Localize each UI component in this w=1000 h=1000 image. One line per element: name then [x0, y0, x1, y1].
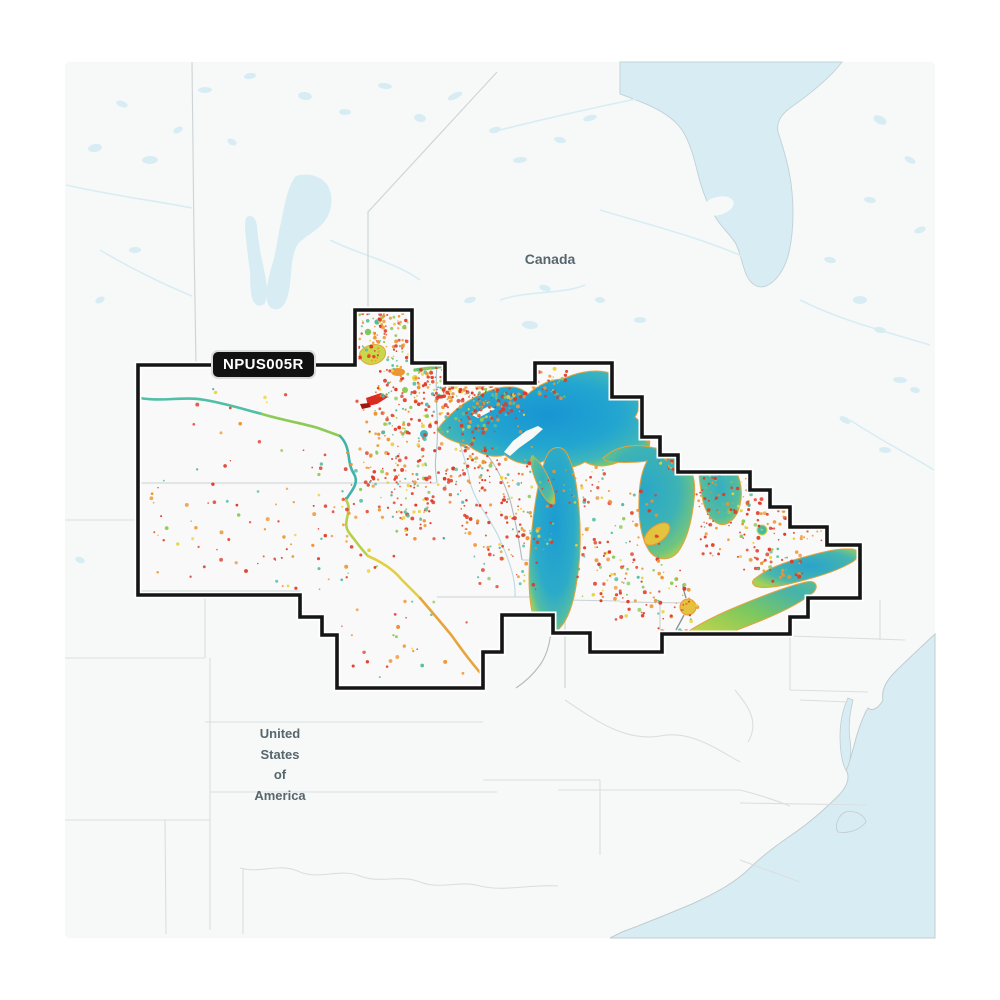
coverage-dot — [512, 402, 516, 406]
coverage-dot — [466, 390, 468, 392]
coverage-dot — [703, 497, 706, 500]
coverage-dot — [387, 507, 389, 509]
coverage-dot — [403, 325, 406, 328]
coverage-dot — [466, 521, 469, 524]
coverage-dot — [422, 384, 425, 387]
coverage-dot — [397, 497, 399, 499]
coverage-dot — [397, 455, 400, 458]
coverage-dot — [675, 586, 677, 588]
coverage-dot — [428, 423, 431, 426]
coverage-dot — [460, 508, 462, 510]
coverage-dot — [413, 480, 417, 484]
coverage-dot — [400, 468, 404, 472]
coverage-dot — [317, 567, 320, 570]
coverage-dot — [785, 569, 787, 571]
coverage-dot — [439, 387, 441, 389]
coverage-dot — [317, 557, 320, 560]
coverage-dot — [466, 412, 468, 414]
coverage-dot — [600, 592, 603, 595]
coverage-dot — [643, 612, 645, 614]
coverage-dot — [598, 481, 600, 483]
coverage-dot — [608, 490, 610, 492]
coverage-dot — [482, 388, 484, 390]
coverage-dot — [359, 499, 363, 503]
coverage-dot — [396, 511, 398, 513]
coverage-dot — [395, 635, 398, 638]
coverage-dot — [542, 488, 544, 490]
coverage-dot — [458, 391, 461, 394]
coverage-dot — [403, 644, 406, 647]
coverage-dot — [429, 384, 431, 386]
coverage-dot — [448, 395, 452, 399]
coverage-dot — [488, 406, 491, 409]
coverage-dot — [753, 546, 755, 548]
coverage-dot — [614, 577, 618, 581]
coverage-dot — [410, 517, 414, 521]
coverage-dot — [768, 548, 772, 552]
coverage-dot — [491, 393, 494, 396]
coverage-dot — [157, 487, 159, 489]
coverage-dot — [346, 451, 349, 454]
coverage-dot — [496, 388, 499, 391]
coverage-dot — [354, 516, 357, 519]
coverage-dot — [365, 420, 368, 423]
coverage-dot — [722, 503, 725, 506]
coverage-dot — [404, 428, 406, 430]
coverage-dot — [435, 396, 439, 400]
coverage-dot — [347, 572, 349, 574]
coverage-dot — [727, 538, 730, 541]
coverage-dot — [652, 569, 655, 572]
coverage-dot — [356, 608, 359, 611]
coverage-dot — [489, 476, 490, 477]
coverage-dot — [432, 537, 435, 540]
coverage-dot — [695, 604, 698, 607]
coverage-dot — [504, 458, 508, 462]
coverage-dot — [192, 423, 195, 426]
coverage-dot — [203, 565, 206, 568]
coverage-dot — [485, 400, 487, 402]
coverage-dot — [737, 505, 740, 508]
coverage-dot — [376, 340, 379, 343]
coverage-dot — [413, 487, 415, 489]
coverage-dot — [423, 511, 425, 513]
coverage-dot — [266, 517, 270, 521]
coverage-dot — [394, 478, 396, 480]
coverage-dot — [473, 400, 475, 402]
coverage-dot — [682, 604, 684, 606]
coverage-dot — [227, 538, 230, 541]
coverage-dot — [472, 453, 474, 455]
coverage-dot — [688, 601, 690, 603]
coverage-dot — [625, 542, 627, 544]
coverage-dot — [426, 506, 428, 508]
coverage-dot — [405, 359, 408, 362]
coverage-dot — [412, 650, 414, 652]
coverage-dot — [411, 648, 413, 650]
coverage-dot — [614, 586, 618, 590]
coverage-dot — [460, 424, 464, 428]
coverage-dot — [778, 523, 781, 526]
coverage-dot — [704, 536, 707, 539]
coverage-dot — [620, 567, 623, 570]
coverage-dot — [443, 392, 445, 394]
coverage-dot — [411, 601, 413, 603]
coverage-dot — [196, 468, 198, 470]
coverage-dot — [506, 521, 508, 523]
coverage-dot — [536, 540, 540, 544]
coverage-dot — [380, 497, 382, 499]
coverage-dot — [238, 422, 242, 426]
coverage-dot — [425, 464, 427, 466]
coverage-dot — [583, 546, 586, 549]
coverage-dot — [527, 511, 529, 513]
coverage-dot — [461, 501, 464, 504]
coverage-dot — [407, 423, 411, 427]
coverage-dot — [554, 502, 556, 504]
coverage-dot — [153, 502, 155, 504]
coverage-dot — [756, 557, 759, 560]
coverage-dot — [658, 590, 660, 592]
coverage-dot — [344, 565, 348, 569]
coverage-dot — [531, 446, 533, 448]
coverage-dot — [645, 503, 648, 506]
coverage-dot — [461, 433, 464, 436]
coverage-dot — [404, 529, 407, 532]
coverage-dot — [524, 395, 526, 397]
coverage-dot — [263, 396, 267, 400]
coverage-dot — [702, 552, 705, 555]
coverage-dot — [754, 557, 756, 559]
coverage-dot — [597, 562, 601, 566]
coverage-dot — [754, 567, 757, 570]
coverage-dot — [760, 562, 763, 565]
coverage-dot — [463, 505, 465, 507]
coverage-dot — [521, 533, 525, 537]
coverage-dot — [784, 557, 786, 559]
coverage-dot — [786, 557, 788, 559]
coverage-dot — [793, 537, 796, 540]
coverage-dot — [432, 601, 435, 604]
coverage-dot — [402, 516, 406, 520]
coverage-dot — [384, 329, 388, 333]
coverage-dot — [402, 427, 404, 429]
coverage-dot — [216, 549, 218, 551]
coverage-dot — [519, 411, 520, 412]
coverage-dot — [507, 498, 509, 500]
coverage-dot — [431, 367, 434, 370]
coverage-dot — [708, 500, 710, 502]
coverage-dot — [500, 511, 501, 512]
coverage-dot — [414, 397, 416, 399]
coverage-dot — [688, 597, 690, 599]
coverage-dot — [629, 541, 631, 543]
coverage-dot — [553, 382, 556, 385]
coverage-dot — [402, 437, 403, 438]
coverage-dot — [442, 388, 446, 392]
coverage-dot — [363, 461, 365, 463]
coverage-dot — [463, 462, 465, 464]
coverage-dot — [366, 510, 369, 513]
coverage-dot — [577, 568, 580, 571]
coverage-dot — [393, 355, 395, 357]
coverage-dot — [185, 503, 189, 507]
coverage-dot — [430, 614, 433, 617]
coverage-dot — [615, 525, 617, 527]
coverage-dot — [657, 559, 660, 562]
coverage-dot — [778, 539, 780, 541]
coverage-dot — [478, 430, 480, 432]
coverage-dot — [798, 562, 800, 564]
coverage-map — [0, 0, 1000, 1000]
coverage-dot — [507, 473, 510, 476]
coverage-dot — [263, 555, 265, 557]
coverage-dot — [494, 406, 496, 408]
coverage-dot — [484, 388, 487, 391]
coverage-dot — [197, 546, 199, 548]
coverage-dot — [518, 473, 520, 475]
coverage-dot — [480, 418, 484, 422]
coverage-dot — [745, 478, 747, 480]
coverage-dot — [777, 548, 780, 551]
coverage-dot — [465, 515, 469, 519]
coverage-dot — [641, 612, 643, 614]
coverage-dot — [403, 464, 406, 467]
coverage-dot — [350, 463, 353, 466]
coverage-dot — [474, 467, 476, 469]
coverage-dot — [290, 543, 292, 545]
coverage-dot — [359, 354, 361, 356]
coverage-dot — [522, 392, 526, 396]
coverage-dot — [591, 471, 593, 473]
coverage-dot — [367, 354, 370, 357]
coverage-dot — [211, 483, 214, 486]
coverage-dot — [550, 533, 551, 534]
coverage-dot — [484, 446, 487, 449]
coverage-dot — [549, 504, 552, 507]
coverage-dot — [398, 459, 402, 463]
coverage-dot — [474, 427, 477, 430]
coverage-dot — [765, 552, 769, 556]
coverage-dot — [576, 576, 579, 579]
coverage-dot — [667, 465, 669, 467]
coverage-dot — [375, 391, 377, 393]
coverage-dot — [403, 600, 406, 603]
coverage-dot — [425, 497, 429, 501]
coverage-dot — [552, 522, 554, 524]
coverage-dot — [491, 420, 493, 422]
coverage-dot — [478, 398, 480, 400]
coverage-dot — [417, 485, 419, 487]
coverage-dot — [425, 403, 429, 407]
coverage-dot — [424, 408, 427, 411]
coverage-dot — [465, 499, 468, 502]
coverage-dot — [737, 556, 739, 558]
coverage-dot — [377, 478, 379, 480]
coverage-dot — [406, 489, 408, 491]
coverage-dot — [760, 512, 763, 515]
coverage-dot — [654, 599, 658, 603]
coverage-dot — [634, 599, 637, 602]
coverage-dot — [393, 469, 396, 472]
coverage-dot — [362, 322, 364, 324]
coverage-dot — [405, 356, 408, 359]
coverage-dot — [421, 373, 424, 376]
coverage-dot — [436, 382, 438, 384]
coverage-dot — [612, 555, 615, 558]
coverage-dot — [449, 400, 452, 403]
coverage-dot — [712, 555, 714, 557]
coverage-dot — [397, 320, 398, 321]
coverage-dot — [394, 344, 398, 348]
coverage-dot — [163, 480, 165, 482]
chart-coverage-product-image: Canada United States of America NPUS005R — [0, 0, 1000, 1000]
coverage-dot — [393, 348, 395, 350]
coverage-dot — [392, 358, 394, 360]
coverage-dot — [397, 327, 399, 329]
coverage-dot — [496, 415, 498, 417]
coverage-dot — [403, 398, 407, 402]
coverage-dot — [739, 555, 742, 558]
coverage-dot — [406, 373, 409, 376]
coverage-dot — [467, 479, 470, 482]
coverage-dot — [626, 568, 629, 571]
coverage-dot — [425, 414, 429, 418]
coverage-dot — [649, 592, 651, 594]
coverage-dot — [502, 404, 505, 407]
coverage-dot — [230, 460, 231, 461]
coverage-dot — [410, 485, 412, 487]
coverage-dot — [672, 468, 675, 471]
coverage-dot — [500, 557, 504, 561]
coverage-dot — [602, 596, 604, 598]
coverage-dot — [746, 549, 749, 552]
coverage-dot — [625, 572, 628, 575]
coverage-dot — [376, 360, 379, 363]
coverage-dot — [424, 383, 427, 386]
coverage-dot — [468, 418, 471, 421]
coverage-dot — [590, 490, 592, 492]
coverage-dot — [654, 494, 657, 497]
coverage-dot — [446, 468, 448, 470]
coverage-dot — [398, 474, 400, 476]
coverage-dot — [386, 314, 388, 316]
coverage-dot — [418, 372, 420, 374]
coverage-dot — [467, 392, 469, 394]
coverage-dot — [365, 451, 369, 455]
coverage-dot — [594, 465, 598, 469]
coverage-dot — [341, 490, 343, 492]
coverage-dot — [637, 608, 641, 612]
coverage-dot — [383, 379, 387, 383]
coverage-dot — [377, 387, 380, 390]
coverage-dot — [376, 334, 378, 336]
coverage-dot — [421, 424, 425, 428]
coverage-dot — [420, 523, 422, 525]
coverage-dot — [515, 417, 517, 419]
coverage-dot — [404, 431, 406, 433]
coverage-dot — [412, 382, 416, 386]
coverage-dot — [358, 447, 361, 450]
coverage-dot — [501, 407, 505, 411]
coverage-dot — [454, 417, 457, 420]
coverage-dot — [756, 511, 760, 515]
coverage-dot — [689, 614, 691, 616]
coverage-dot — [515, 513, 517, 515]
coverage-dot — [418, 437, 420, 439]
coverage-dot — [416, 395, 418, 397]
coverage-dot — [355, 400, 358, 403]
coverage-dot — [603, 472, 606, 475]
coverage-dot — [528, 511, 532, 515]
coverage-dot — [657, 552, 658, 553]
coverage-dot — [378, 437, 381, 440]
coverage-dot — [399, 324, 401, 326]
coverage-dot — [382, 431, 386, 435]
coverage-dot — [427, 386, 430, 389]
coverage-dot — [596, 546, 598, 548]
coverage-dot — [429, 522, 431, 524]
coverage-dot — [365, 348, 368, 351]
coverage-dot — [506, 395, 510, 399]
coverage-dot — [383, 412, 385, 414]
coverage-dot — [317, 473, 320, 476]
coverage-dot — [389, 370, 391, 372]
coverage-dot — [376, 357, 378, 359]
coverage-dot — [725, 477, 727, 479]
coverage-dot — [482, 461, 485, 464]
coverage-dot — [701, 503, 702, 504]
coverage-dot — [517, 505, 519, 507]
coverage-dot — [437, 483, 440, 486]
coverage-dot — [398, 453, 400, 455]
coverage-dot — [703, 477, 706, 480]
coverage-dot — [533, 538, 536, 541]
coverage-dot — [507, 482, 509, 484]
coverage-dot — [657, 612, 659, 614]
coverage-dot — [157, 534, 159, 536]
coverage-dot — [471, 430, 474, 433]
coverage-dot — [465, 393, 467, 395]
coverage-dot — [527, 461, 531, 465]
coverage-dot — [449, 501, 452, 504]
coverage-dot — [352, 664, 355, 667]
coverage-dot — [468, 408, 470, 410]
coverage-dot — [740, 509, 743, 512]
coverage-dot — [378, 351, 380, 353]
coverage-dot — [740, 481, 742, 483]
coverage-dot — [593, 538, 596, 541]
coverage-dot — [611, 532, 614, 535]
coverage-dot — [213, 500, 217, 504]
coverage-dot — [731, 492, 734, 495]
coverage-dot — [499, 547, 501, 549]
coverage-dot — [399, 321, 402, 324]
coverage-dot — [264, 528, 266, 530]
coverage-dot — [244, 569, 248, 573]
coverage-dot — [552, 470, 556, 474]
coverage-dot — [401, 339, 403, 341]
coverage-dot — [571, 494, 573, 496]
coverage-dot — [722, 493, 725, 496]
coverage-dot — [730, 522, 732, 524]
coverage-dot — [600, 599, 603, 602]
coverage-dot — [415, 377, 417, 379]
coverage-dot — [236, 504, 239, 507]
coverage-dot — [518, 531, 520, 533]
coverage-dot — [374, 483, 377, 486]
coverage-dot — [529, 532, 532, 535]
